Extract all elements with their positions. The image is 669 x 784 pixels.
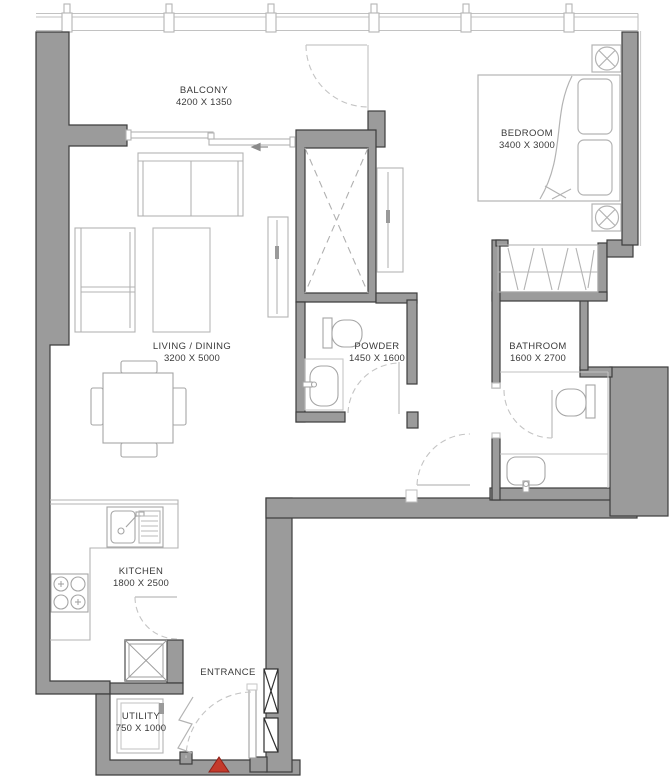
rug (153, 228, 210, 332)
nightstand-lamp-top (592, 45, 621, 72)
railing-posts (62, 4, 574, 32)
room-dims: 1800 X 2500 (113, 578, 169, 590)
room-name: ENTRANCE (200, 667, 255, 679)
room-name: KITCHEN (113, 566, 169, 578)
room-name: BALCONY (176, 85, 232, 97)
stove (51, 574, 88, 612)
dining-chair-top (121, 361, 157, 373)
shaft-cross (305, 148, 368, 293)
label-living-dining: LIVING / DINING 3200 X 5000 (153, 341, 231, 365)
entrance-door-leaf (249, 690, 256, 758)
powder-door (348, 362, 400, 414)
label-kitchen: KITCHEN 1800 X 2500 (113, 566, 169, 590)
balcony-railing (36, 14, 638, 31)
room-name: BEDROOM (499, 128, 555, 140)
room-dims: 4200 X 1350 (176, 97, 232, 109)
dining-chair-right (172, 388, 186, 425)
room-name: LIVING / DINING (153, 341, 231, 353)
balcony-sliding-door (126, 130, 295, 147)
floor-plan: BALCONY 4200 X 1350 BEDROOM 3400 X 3000 … (0, 0, 669, 784)
armchair (75, 228, 135, 332)
powder-sink (303, 359, 343, 410)
tv-cabinet (268, 217, 288, 317)
label-balcony: BALCONY 4200 X 1350 (176, 85, 232, 109)
wardrobe (377, 168, 403, 272)
dining-chair-left (91, 388, 103, 425)
room-dims: 3400 X 3000 (499, 140, 555, 152)
hall-door-jamb (406, 490, 417, 502)
kitchen-sink (107, 507, 163, 547)
hall-door (417, 434, 470, 485)
room-dims: 750 X 1000 (116, 723, 167, 735)
dining-table (103, 373, 173, 443)
floor-plan-drawing (0, 0, 669, 784)
label-powder: POWDER 1450 X 1600 (349, 341, 405, 365)
bathroom-sink (507, 457, 545, 492)
room-dims: 3200 X 5000 (153, 353, 231, 365)
nightstand-lamp-bottom (592, 204, 621, 231)
bathroom-toilet (556, 385, 595, 418)
appliance-box (125, 640, 167, 681)
closet-hatch (498, 245, 598, 292)
bedroom-door-arc (306, 45, 368, 107)
room-name: POWDER (349, 341, 405, 353)
sofa (138, 153, 243, 216)
utility-bifold-door (178, 697, 193, 753)
entrance-door-frame-boxes (264, 669, 278, 752)
room-name: BATHROOM (509, 341, 566, 353)
bathroom-door (504, 390, 552, 438)
dining-table-set (91, 361, 186, 457)
room-name: UTILITY (116, 711, 167, 723)
room-dims: 1600 X 2700 (509, 353, 566, 365)
dining-chair-bottom (121, 443, 157, 457)
label-utility: UTILITY 750 X 1000 (116, 711, 167, 735)
label-bedroom: BEDROOM 3400 X 3000 (499, 128, 555, 152)
kitchen-door (135, 597, 177, 639)
entrance-door (186, 684, 257, 758)
label-entrance: ENTRANCE (200, 667, 255, 679)
room-dims: 1450 X 1600 (349, 353, 405, 365)
label-bathroom: BATHROOM 1600 X 2700 (509, 341, 566, 365)
